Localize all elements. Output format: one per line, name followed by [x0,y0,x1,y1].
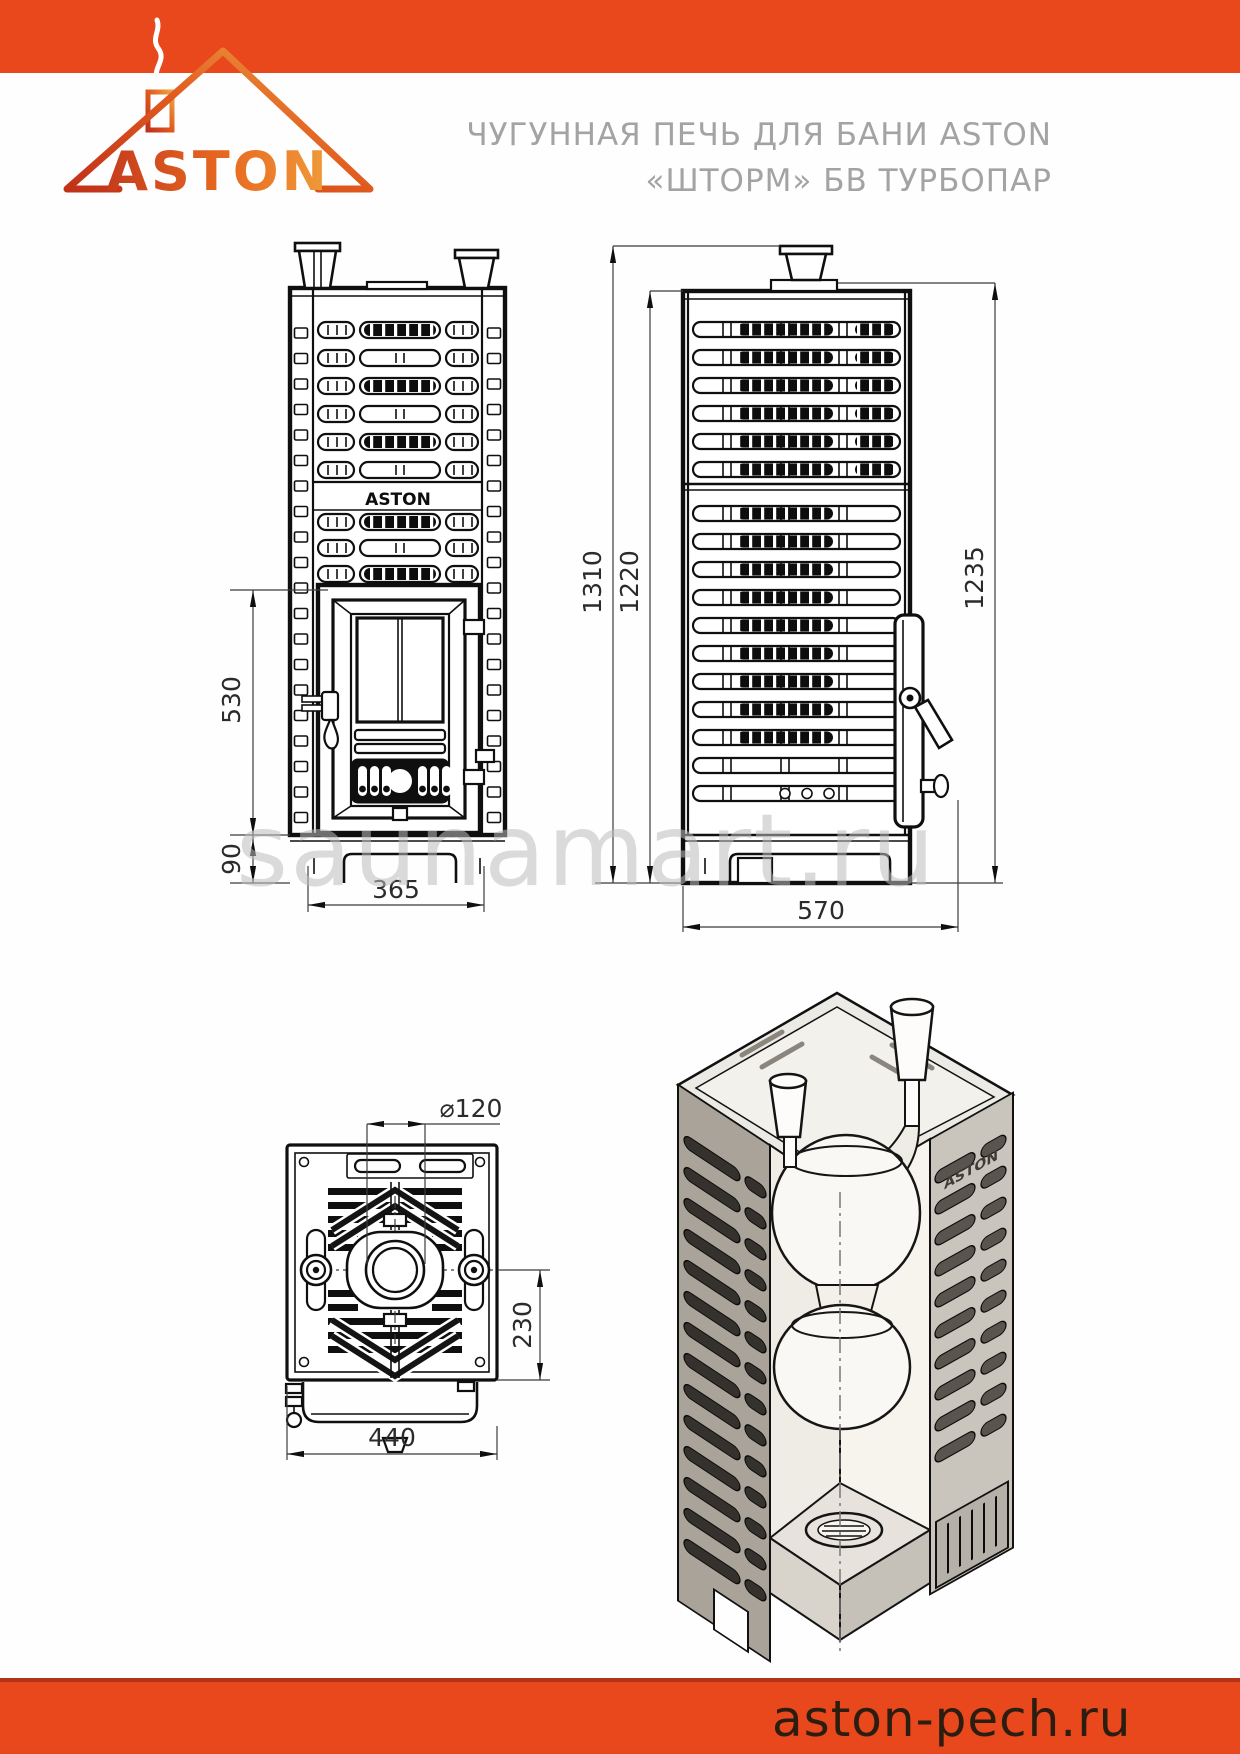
dim-arrow [367,1121,384,1127]
brand-logo: ASTON [55,6,385,201]
dim-arrow [537,1270,543,1287]
front-door-hinge-bottom [464,770,484,784]
fin-bar [432,1304,462,1311]
stone-fill [737,324,833,336]
slot [318,462,354,478]
brand-name: ASTON [106,140,330,201]
stone-fill [737,352,833,364]
dim-230: 230 [508,1301,537,1349]
slot [446,514,478,530]
iso-lower-chamber [774,1305,910,1429]
grille-hole [295,711,308,721]
stone-fill [737,732,833,744]
dim-arrow [941,924,958,930]
slot [446,540,478,556]
grille-hole [295,405,308,415]
slot [446,322,478,338]
watermark: saunamart.ru [236,792,937,909]
grille-hole [295,634,308,644]
slot [360,462,440,478]
stone-fill [737,676,833,688]
slot [360,406,440,422]
slot [446,406,478,422]
front-door-latch [476,750,494,762]
slot [318,406,354,422]
stone-fill [855,436,895,448]
grille-hole [295,379,308,389]
dim-440: 440 [368,1423,416,1452]
slot [318,540,354,556]
grille-hole [488,558,501,568]
dim-530: 530 [218,676,246,724]
stone-fill [364,380,436,392]
stone-fill [737,464,833,476]
dim-arrow [408,1121,425,1127]
grille-hole [488,481,501,491]
stone-fill [364,516,436,528]
stone-fill [364,568,436,580]
grille-hole [488,736,501,746]
grille-hole [295,736,308,746]
grille-hole [295,532,308,542]
grille-hole [488,379,501,389]
top-slot-plate [347,1154,473,1178]
louver-slot [693,758,900,773]
stone-fill [737,620,833,632]
grille-hole [488,685,501,695]
grille-hole [488,456,501,466]
footer-accent-bar: aston-pech.ru [0,1678,1240,1754]
dim-arrow [480,1451,497,1457]
slot [360,540,440,556]
grille-hole [488,711,501,721]
grille-hole [295,430,308,440]
grille-hole [295,583,308,593]
grille-hole [488,430,501,440]
slot [318,514,354,530]
slot [446,462,478,478]
stone-fill [855,380,895,392]
stone-fill [737,380,833,392]
front-door-hinge-top [464,620,484,634]
slot [318,322,354,338]
stone-fill [855,464,895,476]
grille-hole [488,660,501,670]
dim-arrow [683,924,700,930]
dim-arrow [250,590,256,607]
top-view-drawing: ⌀120 230 440 [228,968,578,1478]
stone-fill [737,592,833,604]
slot [318,566,354,582]
stone-fill [855,408,895,420]
dim-flue-diameter: ⌀120 [440,1094,503,1123]
front-plate-brand: ASTON [365,490,431,510]
iso-left-wall [678,1085,770,1667]
stone-fill [364,436,436,448]
stone-fill [737,648,833,660]
slot [446,566,478,582]
footer-url: aston-pech.ru [772,1690,1131,1748]
iso-interior [770,1126,930,1640]
dim-arrow [647,291,653,308]
stone-fill [737,704,833,716]
grille-hole [295,354,308,364]
stone-fill [737,508,833,520]
stone-fill [855,324,895,336]
grille-hole [295,507,308,517]
slot [446,378,478,394]
stone-fill [737,436,833,448]
slot [318,350,354,366]
smoke-icon [155,20,161,81]
stone-fill [737,408,833,420]
page: ASTON ЧУГУННАЯ ПЕЧЬ ДЛЯ БАНИ ASTON «ШТОР… [0,0,1240,1754]
stone-fill [737,564,833,576]
slot [318,434,354,450]
grille-hole [488,405,501,415]
stone-fill [737,536,833,548]
isometric-cutaway-drawing: ASTON [592,985,1042,1675]
dim-arrow [287,1451,304,1457]
grille-hole [295,558,308,568]
grille-hole [488,609,501,619]
grille-hole [488,354,501,364]
fin-bar [328,1304,358,1311]
grille-hole [488,532,501,542]
doc-title-line2: «ШТОРМ» БВ ТУРБОПАР [466,158,1052,204]
dim-arrow [992,866,998,883]
grille-hole [295,685,308,695]
grille-hole [488,507,501,517]
grille-hole [295,762,308,772]
front-chimney-funnels [295,243,498,289]
top-flue-collar [347,1232,443,1308]
grille-hole [295,328,308,338]
grille-hole [295,456,308,466]
dim-1235: 1235 [960,546,989,610]
grille-hole [295,660,308,670]
side-louver-rows [693,321,900,802]
dim-arrow [610,246,616,263]
dim-1310: 1310 [578,550,607,614]
side-chimney-funnel [771,246,837,291]
iso-right-wall: ASTON [930,1093,1013,1595]
doc-title: ЧУГУННАЯ ПЕЧЬ ДЛЯ БАНИ ASTON «ШТОРМ» БВ … [466,112,1052,204]
dim-arrow [537,1363,543,1380]
dim-1220: 1220 [615,550,644,614]
slot [318,378,354,394]
top-handle-knob [287,1413,301,1427]
slot [446,434,478,450]
grille-hole [295,481,308,491]
slot [360,350,440,366]
slot [446,350,478,366]
dim-arrow [992,283,998,300]
doc-title-line1: ЧУГУННАЯ ПЕЧЬ ДЛЯ БАНИ ASTON [466,112,1052,158]
grille-hole [295,609,308,619]
grille-hole [488,328,501,338]
grille-hole [488,583,501,593]
stone-fill [855,352,895,364]
grille-hole [488,634,501,644]
stone-fill [364,324,436,336]
